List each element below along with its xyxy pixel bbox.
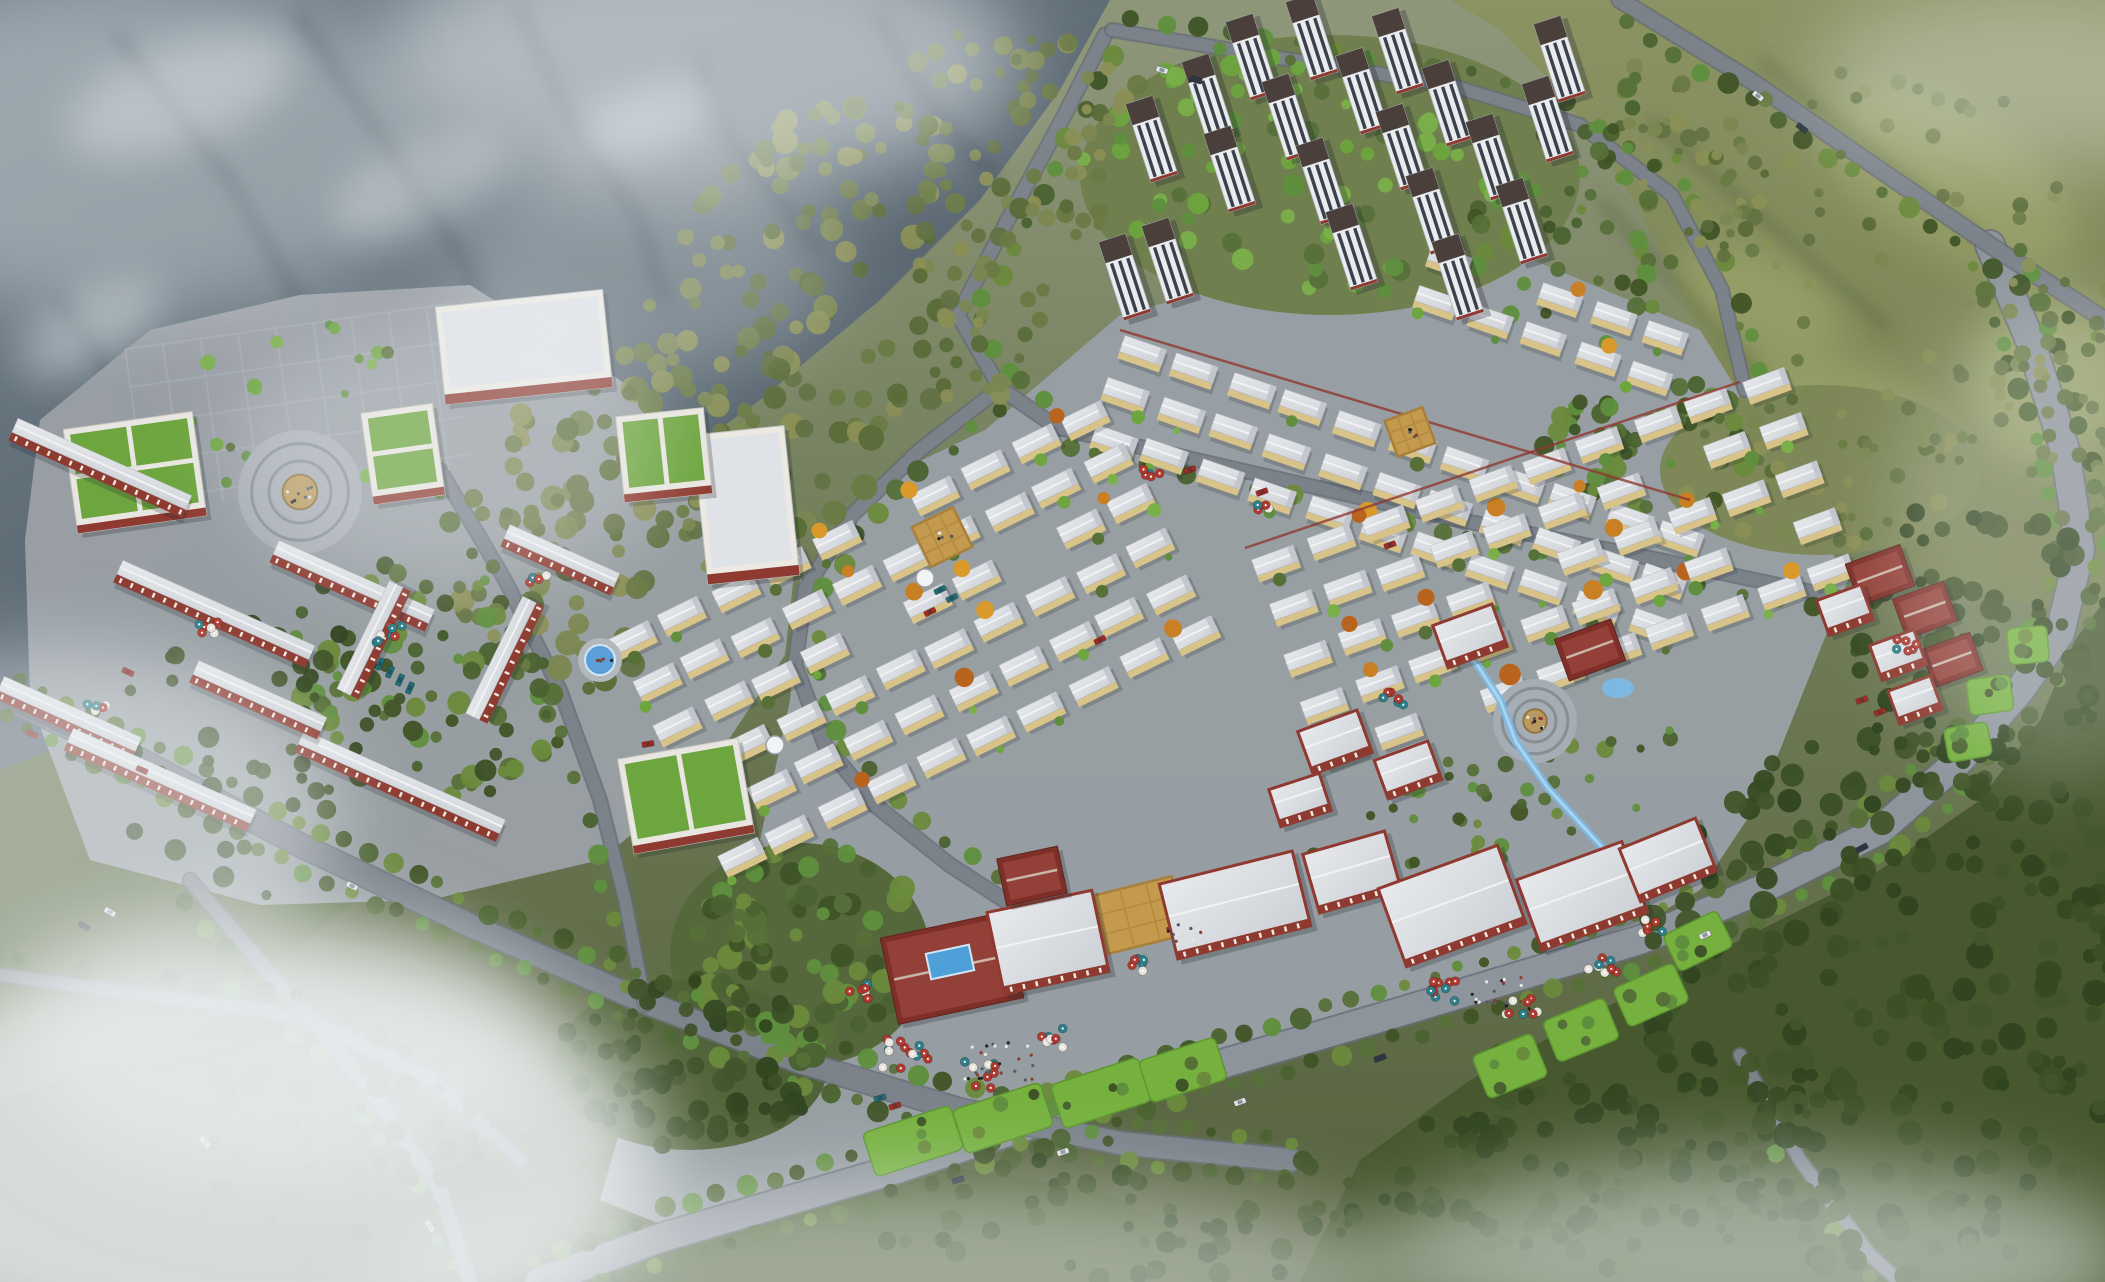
tree [1476, 1140, 1495, 1159]
tree [446, 714, 459, 727]
tree [908, 1065, 929, 1086]
tree [1725, 413, 1743, 431]
tree [412, 761, 423, 772]
tree [831, 944, 855, 968]
tree [533, 926, 543, 936]
tree [1589, 121, 1601, 133]
umbrella-top [927, 1058, 929, 1060]
tree [411, 661, 425, 675]
person [1030, 1054, 1033, 1057]
tree [611, 1039, 627, 1055]
tree [1695, 150, 1710, 165]
tree [1923, 219, 1938, 234]
tree [698, 392, 713, 407]
tree [822, 500, 847, 525]
tree [909, 316, 928, 335]
tree [1879, 775, 1896, 792]
tree [1968, 261, 1979, 272]
tree [738, 961, 757, 980]
tree [1361, 147, 1375, 161]
person [599, 659, 602, 662]
tree [1703, 209, 1714, 220]
umbrella-top [1646, 925, 1648, 927]
tree [1567, 826, 1577, 836]
tree [1331, 1046, 1352, 1067]
person [1415, 434, 1418, 437]
tree [1639, 500, 1653, 514]
tree [1953, 773, 1971, 791]
tree [655, 510, 674, 529]
tree [916, 222, 935, 241]
tree [1733, 208, 1743, 218]
tree [1522, 1154, 1539, 1171]
tree [1081, 125, 1098, 142]
tree [1065, 167, 1079, 181]
tree [559, 983, 575, 999]
tree [1736, 143, 1748, 155]
tree [758, 945, 770, 957]
tree [622, 1018, 636, 1032]
tree [1181, 1120, 1195, 1134]
tree [296, 606, 308, 618]
tree [947, 266, 962, 281]
tree [1281, 1065, 1296, 1080]
person [1528, 1007, 1531, 1010]
tree [1517, 1088, 1534, 1105]
tree [1263, 1018, 1281, 1036]
person [596, 659, 599, 662]
tree [1847, 513, 1855, 521]
tree [703, 1000, 727, 1024]
tree [1358, 1039, 1376, 1057]
tree [1252, 1073, 1266, 1087]
tree [1905, 379, 1913, 387]
tree [1309, 263, 1323, 277]
tree [1818, 148, 1838, 168]
tree [852, 262, 868, 278]
person [994, 1061, 997, 1064]
umbrella-top [1402, 704, 1404, 706]
tree [1031, 1153, 1046, 1168]
tree [1973, 931, 1988, 946]
tree [991, 178, 1010, 197]
umbrella-top [1609, 959, 1611, 961]
tree [936, 144, 955, 163]
tree [1901, 401, 1916, 416]
tree [1657, 1053, 1677, 1073]
tree [987, 140, 1001, 154]
tree [906, 195, 925, 214]
umbrella-top [987, 1064, 989, 1066]
tree [1996, 1078, 2009, 1091]
tree [1632, 804, 1640, 812]
tree [1000, 231, 1017, 248]
umbrella-top [1508, 1012, 1510, 1014]
tree [1747, 1081, 1769, 1103]
tree [859, 861, 876, 878]
tree [546, 655, 572, 681]
tree [582, 682, 595, 695]
tree [1854, 874, 1871, 891]
tree [1576, 205, 1586, 215]
tree [979, 172, 993, 186]
tree [1830, 878, 1854, 902]
umbrella-top [1397, 698, 1399, 700]
umbrella-top [1655, 921, 1657, 923]
tree [746, 1003, 760, 1017]
tree [1172, 1162, 1192, 1182]
tree [484, 785, 496, 797]
tree [1706, 1055, 1718, 1067]
tree [1440, 1015, 1453, 1028]
umbrella-top [1601, 957, 1603, 959]
tree [2028, 799, 2053, 824]
tree [1905, 764, 1917, 776]
tree [384, 853, 404, 873]
tree [1507, 946, 1521, 960]
tree [1252, 1172, 1263, 1183]
tree [1814, 188, 1823, 197]
tree [1745, 243, 1759, 257]
person [1526, 716, 1529, 719]
tree [453, 654, 463, 664]
person [993, 1044, 996, 1047]
umbrella-top [964, 1061, 966, 1063]
tree [1564, 186, 1575, 197]
tree [858, 1048, 878, 1068]
tree [1823, 828, 1836, 841]
tree [589, 1014, 601, 1026]
tree [1619, 14, 1634, 29]
tree [736, 893, 751, 908]
tree [606, 911, 621, 926]
aerial-town-rendering [0, 0, 2105, 1282]
tree [1881, 388, 1894, 401]
person [938, 532, 941, 535]
tree [578, 946, 596, 964]
tree [1235, 1025, 1253, 1043]
tree [887, 887, 913, 913]
tree [834, 895, 853, 914]
tree [1590, 142, 1609, 161]
tree [1735, 322, 1744, 331]
tree [1836, 150, 1846, 160]
tree [1678, 178, 1692, 192]
person [1485, 1001, 1488, 1004]
tree [789, 1165, 804, 1180]
tree [270, 336, 283, 349]
umbrella-top [1142, 970, 1144, 972]
tree [1576, 166, 1588, 178]
tree [1443, 757, 1454, 768]
tree [1093, 219, 1104, 230]
tree [1206, 1127, 1216, 1137]
tree [1797, 316, 1810, 329]
tree [1585, 189, 1597, 201]
tree [1922, 350, 1936, 364]
umbrella-top [1257, 504, 1259, 506]
tree [1898, 896, 1918, 916]
tree [2085, 1005, 2102, 1022]
tree [1885, 849, 1903, 867]
tree [907, 460, 929, 482]
umbrella-top [1661, 930, 1663, 932]
tree [1680, 129, 1698, 147]
tree [384, 700, 402, 718]
tree [1773, 1101, 1795, 1123]
umbrella-top [213, 632, 215, 634]
tree [2038, 284, 2048, 294]
tree [1966, 836, 1980, 850]
tree [1329, 1211, 1340, 1222]
tree [1011, 371, 1030, 390]
tree [1111, 1117, 1122, 1128]
umbrella-top [990, 1087, 992, 1089]
tree [852, 474, 878, 500]
tree [1630, 279, 1647, 296]
tree [1618, 1127, 1638, 1147]
tree [517, 960, 533, 976]
tree [1622, 143, 1633, 154]
umbrella-top [391, 627, 393, 629]
umbrella-top [912, 1053, 914, 1055]
tree [1340, 140, 1354, 154]
umbrella-top [975, 1085, 977, 1087]
person [1031, 1064, 1034, 1067]
tree [487, 629, 500, 642]
tree [1399, 980, 1410, 991]
person [941, 536, 944, 539]
tree [1678, 1072, 1697, 1091]
tree [369, 705, 382, 718]
tree [1847, 772, 1864, 789]
tree [1764, 834, 1787, 857]
tree [1915, 817, 1931, 833]
tree [1415, 1030, 1429, 1044]
tree [1775, 1003, 1788, 1016]
tree [1281, 209, 1295, 223]
tree [1228, 1078, 1240, 1090]
tree [1647, 159, 1661, 173]
tree [867, 1003, 886, 1022]
person [937, 537, 940, 540]
umbrella-top [849, 990, 851, 992]
umbrella-top [1454, 1000, 1456, 1002]
tree [803, 1027, 819, 1043]
tree [1740, 841, 1764, 865]
tree [1090, 203, 1108, 221]
tree [1101, 62, 1115, 76]
tree [688, 1100, 709, 1121]
scene-canvas [0, 0, 2105, 1282]
person [1505, 1004, 1508, 1007]
tree [1500, 77, 1511, 88]
person [984, 1053, 987, 1056]
tree [763, 386, 786, 409]
tree [1673, 75, 1690, 92]
tree [940, 179, 952, 191]
umbrella-top [923, 1052, 925, 1054]
pond [1602, 678, 1634, 698]
tree [1967, 1003, 1992, 1028]
tree [1285, 55, 1296, 66]
tree [1663, 255, 1678, 270]
tree [1152, 198, 1167, 213]
umbrella-top [1142, 468, 1144, 470]
umbrella-top [1587, 968, 1589, 970]
tree [1082, 104, 1092, 114]
tree [1941, 1101, 1954, 1114]
tree [1669, 114, 1687, 132]
tree [1025, 69, 1039, 83]
tree [2019, 1126, 2039, 1146]
umbrella-top [1522, 1013, 1524, 1015]
tree [1717, 249, 1731, 263]
tree [458, 608, 473, 623]
tree [795, 420, 813, 438]
person [1192, 938, 1195, 941]
tree [1471, 835, 1485, 849]
tree [389, 902, 404, 917]
tree [1070, 229, 1082, 241]
tree [1637, 1104, 1660, 1127]
tree [1629, 230, 1647, 248]
tree [1847, 535, 1861, 549]
tree [2021, 258, 2036, 273]
tree [823, 980, 847, 1004]
tree [1727, 973, 1747, 993]
person [602, 658, 605, 661]
tree [200, 355, 215, 370]
tree [1092, 1155, 1104, 1167]
tree [1094, 149, 1106, 161]
tree [1981, 1039, 1997, 1055]
tree [1707, 1141, 1727, 1161]
tree [2053, 1055, 2066, 1068]
tree [1032, 312, 1048, 328]
tree [829, 389, 846, 406]
tree [469, 941, 482, 954]
tree [770, 1101, 791, 1122]
tree [934, 165, 946, 177]
tree [868, 503, 889, 524]
person [1175, 940, 1178, 943]
tree [1801, 386, 1814, 399]
tree [1783, 920, 1809, 946]
tree [1976, 774, 1990, 788]
tree [1820, 793, 1843, 816]
tree [1770, 112, 1787, 129]
tree [949, 445, 959, 455]
tree [954, 241, 969, 256]
tree [1422, 112, 1436, 126]
tree [1103, 113, 1116, 126]
tree [1665, 47, 1682, 64]
tree [1876, 187, 1887, 198]
tree [1463, 1009, 1479, 1025]
tree [735, 1123, 749, 1137]
tree [961, 219, 973, 231]
tree [814, 473, 831, 490]
tree [1852, 662, 1869, 679]
tree [972, 289, 991, 308]
tree [1728, 859, 1746, 877]
tree [1553, 227, 1571, 245]
tree [759, 1102, 772, 1115]
umbrella-top [986, 1076, 988, 1078]
person [1471, 993, 1474, 996]
tree [1064, 128, 1081, 145]
tree [1614, 275, 1630, 291]
tree [1606, 736, 1617, 747]
tree [360, 717, 374, 731]
tree [489, 748, 502, 761]
tree [1385, 258, 1404, 277]
sphere-fountain [766, 736, 784, 754]
tree [972, 266, 987, 281]
umbrella-top [1907, 650, 1909, 652]
tree [430, 731, 441, 742]
tree [626, 576, 649, 599]
tree [1760, 169, 1769, 178]
tree [839, 1041, 854, 1056]
tree [1608, 123, 1619, 134]
tree [1946, 853, 1964, 871]
tree [1907, 1041, 1927, 1061]
tree [609, 945, 626, 962]
tree [1838, 440, 1847, 449]
tree [1379, 1193, 1391, 1205]
umbrella-top [1610, 968, 1612, 970]
tree [567, 771, 580, 784]
tree [887, 384, 908, 405]
umbrella-top [1387, 691, 1389, 693]
tree [1905, 974, 1931, 1000]
person [1493, 990, 1496, 993]
tree [1122, 10, 1139, 27]
tree [796, 1052, 811, 1067]
umbrella-top [994, 1065, 996, 1067]
person [1176, 932, 1179, 935]
tree [1980, 793, 1999, 812]
tree [2013, 211, 2027, 225]
tree [676, 505, 689, 518]
tree [854, 390, 872, 408]
tree [1026, 168, 1041, 183]
umbrella-top [1526, 1001, 1528, 1003]
tree [795, 885, 818, 908]
tree [1738, 221, 1754, 237]
tree [1366, 811, 1375, 820]
tree [1751, 194, 1766, 209]
tree [1568, 1083, 1591, 1106]
tree [1395, 1191, 1416, 1212]
tree [1011, 106, 1031, 126]
tree [1672, 154, 1682, 164]
tree [2039, 876, 2060, 897]
mist-cloud [440, 140, 840, 380]
tree [1981, 1119, 2002, 1140]
tree [1864, 796, 1881, 813]
tree [994, 1159, 1012, 1177]
tree [1059, 33, 1077, 51]
umbrella-top [198, 623, 200, 625]
tree [768, 1074, 783, 1089]
tree [1371, 985, 1388, 1002]
tree [1976, 1150, 2001, 1175]
tree [1585, 774, 1594, 783]
umbrella-top [904, 1046, 906, 1048]
